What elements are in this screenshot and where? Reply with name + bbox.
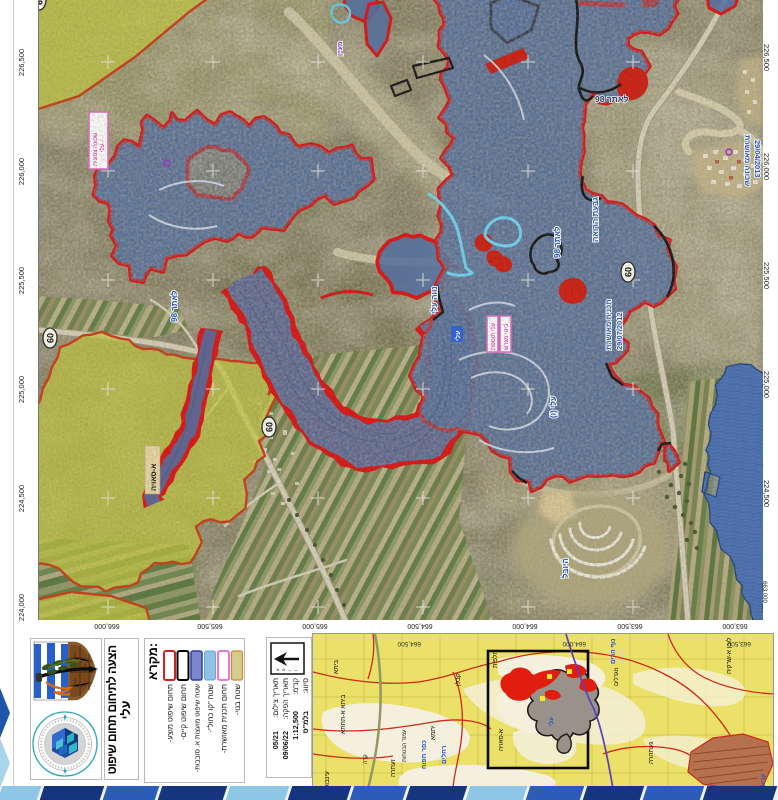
svg-text:ו: ו (287, 670, 292, 671)
svg-text:סיווג:: סיווג: (301, 678, 310, 694)
svg-text:יתמא: יתמא (430, 725, 437, 740)
svg-text:מגדלים: מגדלים (612, 667, 620, 686)
svg-text:א-סאויה: א-סאויה (498, 729, 505, 751)
svg-text:ביתא: ביתא (333, 660, 340, 674)
svg-text:שטח שיפוט מועצות א. סובבות-: שטח שיפוט מועצות א. סובבות- (195, 684, 202, 772)
svg-text:קבלן: קבלן (454, 673, 462, 686)
svg-text:תחום שיפוט קיים-: תחום שיפוט קיים- (179, 684, 188, 740)
svg-text:קנ"מ:: קנ"מ: (291, 678, 300, 695)
svg-text:שטח "קו כחול"-: שטח "קו כחול"- (206, 683, 215, 732)
svg-text:664,000: 664,000 (562, 640, 586, 647)
svg-text:רחלים: רחלים (440, 745, 448, 764)
svg-text:עמוד הבטחות: עמוד הבטחות (402, 730, 408, 762)
svg-text:09/06/22: 09/06/22 (281, 731, 290, 759)
svg-text:ביתא א-תחתא: ביתא א-תחתא (340, 694, 347, 734)
svg-text:1:12,500: 1:12,500 (291, 711, 300, 740)
svg-text:נוף הרים: נוף הרים (610, 638, 617, 664)
svg-text:תאריך הפקה:: תאריך הפקה: (281, 678, 290, 719)
svg-text:663,500: 663,500 (727, 640, 751, 647)
svg-text:פ: פ (281, 668, 286, 671)
svg-text:עלי: עלי (547, 717, 555, 726)
svg-text:שטח בנוי-: שטח בנוי- (233, 683, 242, 715)
svg-text:תאריך צילום:: תאריך צילום: (271, 678, 280, 718)
svg-text:תחום שיפוט מוצע-: תחום שיפוט מוצע- (166, 684, 175, 742)
svg-text:בלמ"ס: בלמ"ס (301, 711, 310, 734)
svg-text:קרה: קרה (363, 754, 369, 764)
svg-text:געתהרה: געתהרה (648, 741, 655, 764)
svg-text:05/21: 05/21 (271, 731, 280, 749)
svg-text:צ: צ (275, 668, 280, 671)
svg-text:זעתרה: זעתרה (390, 758, 397, 777)
svg-text:664,500: 664,500 (397, 640, 421, 647)
svg-text:כפר תפוח: כפר תפוח (421, 740, 428, 769)
svg-text:ן: ן (293, 670, 298, 671)
svg-text:תלפית: תלפית (491, 650, 499, 668)
svg-text:תחום תכנית מאושרת-: תחום תכנית מאושרת- (220, 684, 229, 753)
